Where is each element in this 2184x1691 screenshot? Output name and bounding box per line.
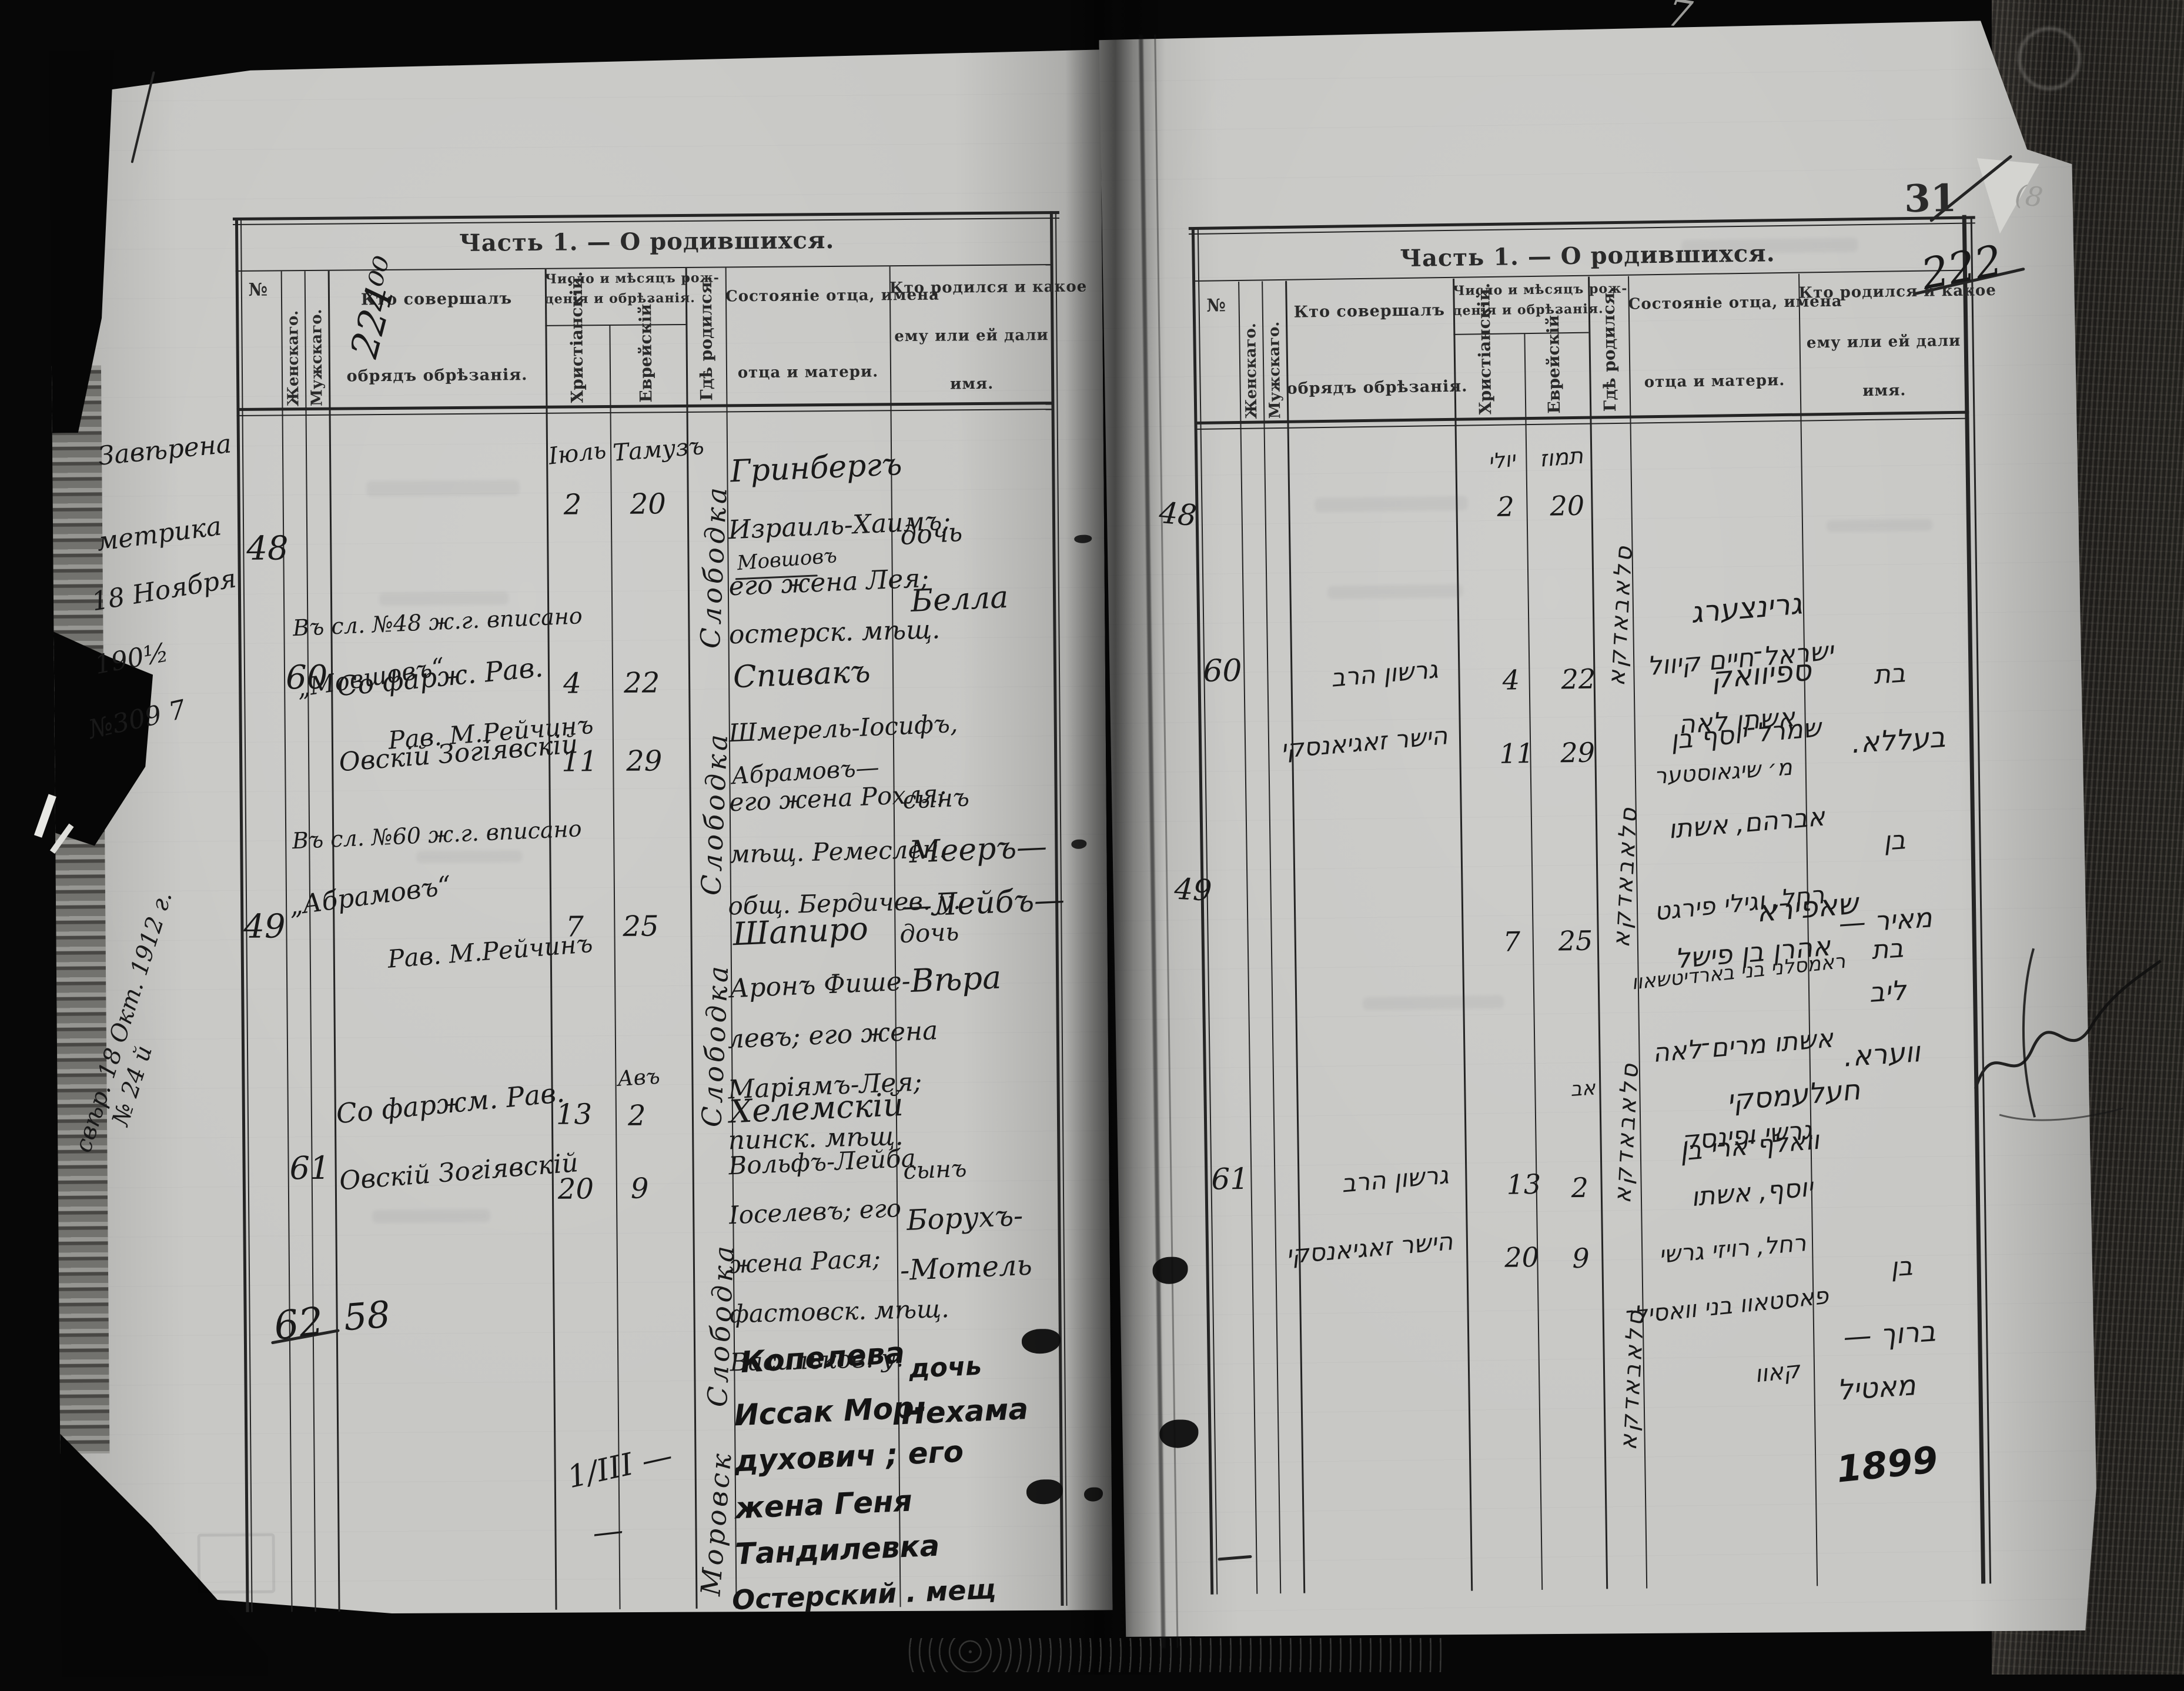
signature-scrawl — [1962, 936, 2176, 1139]
right-page-rows-2-child-1: ווערא. — [1842, 1037, 1921, 1072]
right-page-rows-2-father-0: שאפירא — [1755, 888, 1859, 927]
right-page-rows-3-father-5: קאוו — [1754, 1358, 1801, 1387]
right-page-rows-0-chr-1: 2 — [1497, 492, 1514, 521]
right-page-rows-0-jew-1: 20 — [1550, 492, 1584, 520]
right-page-rows-1-child-2: ליב — [1868, 976, 1907, 1007]
right-page-rows-3-jew-1: 2 — [1571, 1174, 1588, 1202]
right-page-rows-0-child-1: בעללא. — [1851, 723, 1946, 758]
right-page-rows-1-father-0: ספיוואק — [1710, 654, 1812, 694]
right-page: Часть 1. — О родившихся.№Кто совершалъоб… — [0, 0, 2184, 1691]
right-page-rows-2-no: 49 — [1173, 874, 1212, 907]
right-page-rows-1-chr-0: 4 — [1502, 666, 1520, 694]
header-col-father-1: Состояніе отца, имена — [1628, 295, 1799, 313]
scan-folio-number: 31 — [1904, 179, 1957, 219]
right-page-rows-3-year: 1899 — [1835, 1441, 1939, 1489]
archival-scan-page: { "scan": { "top_pencil_mark": "7", "fol… — [0, 0, 2184, 1675]
right-page-rows-3-child-0: בן — [1889, 1253, 1913, 1282]
scan-folio-slash-note: (8 — [2014, 180, 2045, 212]
header-col-female: Женскаго. — [1243, 323, 1260, 419]
right-page-rows-3-jew-0: אב — [1570, 1078, 1596, 1100]
right-page-rows-2-jew-0: 25 — [1558, 927, 1593, 955]
bleedthrough-ghost — [1327, 584, 1463, 599]
right-page-rows-3-child-1: ברוך — — [1842, 1316, 1936, 1352]
header-col-dates-2: денія и обрѣзанія. — [1453, 303, 1588, 318]
right-page-rows-0-child-0: בת — [1872, 660, 1906, 689]
bottom-debris — [905, 1638, 1446, 1672]
bleedthrough-ghost — [1827, 519, 1932, 532]
stamp-ghost — [2017, 26, 2081, 91]
header-col-jewish: Еврейскій. — [1544, 309, 1563, 414]
right-page-rows-0-no: 48 — [1158, 497, 1198, 532]
header-col-male: Мужскаго. — [1266, 321, 1284, 419]
right-page-rows-3-chr-1: 20 — [1504, 1243, 1539, 1272]
right-page-rows-1-no: 60 — [1203, 655, 1242, 688]
right-page-rows-1-jew-0: 22 — [1561, 665, 1596, 694]
header-col-no: № — [1194, 296, 1238, 316]
bleedthrough-ghost — [1363, 995, 1504, 1010]
right-page-rows-0-chr-0: יולי — [1487, 449, 1517, 474]
right-page-rows-2-child-0: בת — [1871, 935, 1904, 964]
right-page-rows-3-jew-2: 9 — [1572, 1244, 1590, 1273]
right-page-rows-1-jew-1: 29 — [1560, 738, 1595, 767]
right-page-rows-3-child-2: מאטיל — [1836, 1371, 1917, 1405]
right-page-rows-3-no: 61 — [1211, 1164, 1249, 1195]
right-page-rows-2-chr-0: 7 — [1503, 927, 1520, 956]
right-page-rows-1-child-0: בן — [1882, 827, 1906, 855]
header-col-performer-2: обрядъ обрѣзанія. — [1286, 379, 1454, 397]
header-col-child-3: имя. — [1800, 382, 1969, 400]
header-col-performer-1: Кто совершалъ — [1286, 302, 1453, 321]
header-col-christian: Христіанскій. — [1475, 283, 1494, 415]
header-title: Часть 1. — О родившихся. — [1352, 240, 1823, 272]
header-col-father-2: отца и матери. — [1629, 373, 1800, 391]
right-page-rows-1-chr-1: 11 — [1499, 739, 1534, 768]
header-col-child-2: ему или ей дали — [1799, 333, 1968, 352]
header-col-dates-1: Число и мѣсяцъ рож- — [1453, 283, 1588, 298]
right-page-rows-3-chr-0: 13 — [1506, 1170, 1541, 1199]
header-col-where-born: Гдѣ родился. — [1600, 287, 1618, 412]
right-page-rows-0-jew-0: תמוז — [1539, 445, 1584, 472]
bleedthrough-ghost — [1315, 496, 1467, 513]
